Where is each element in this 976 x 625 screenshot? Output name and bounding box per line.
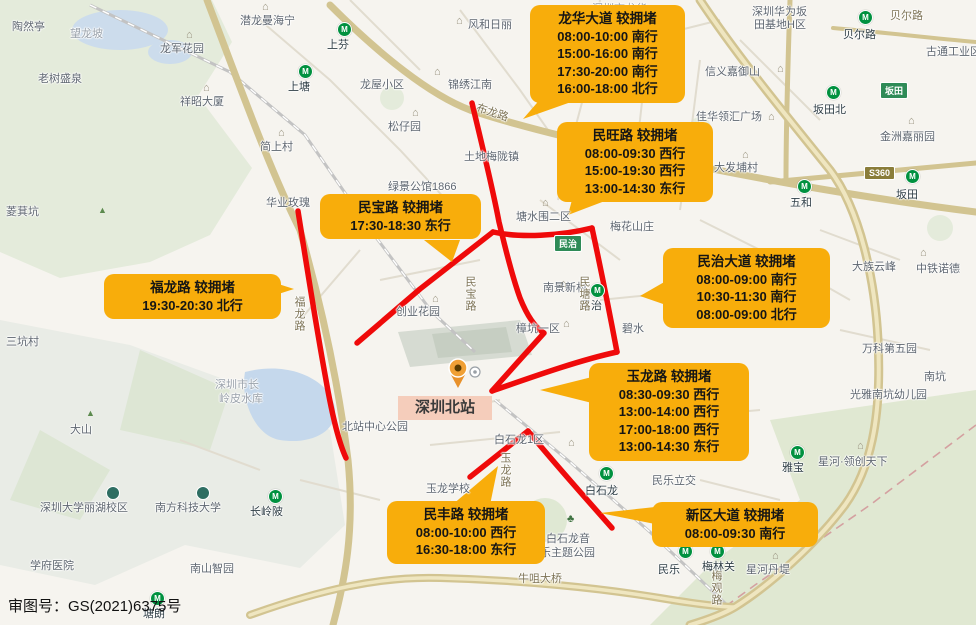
- road-shield: S360: [864, 166, 895, 180]
- callout-title: 民宝路 较拥堵: [326, 199, 475, 217]
- map-label: 菱萁坑: [6, 203, 39, 219]
- school-icon: [106, 486, 120, 500]
- mountain-icon: ▲: [98, 206, 107, 215]
- map-label: 岭皮水库: [219, 390, 263, 406]
- callout-title: 民丰路 较拥堵: [393, 506, 539, 524]
- map-label: 陶然亭: [12, 18, 45, 34]
- building-icon: ⌂: [432, 294, 439, 304]
- map-label: 老树盛泉: [38, 70, 82, 86]
- building-icon: ⌂: [568, 438, 575, 448]
- longhua-avenue-callout: 龙华大道 较拥堵08:00-10:00 南行15:00-16:00 南行17:3…: [530, 5, 685, 103]
- callout-time-line: 08:00-10:00 西行: [393, 524, 539, 542]
- map-label: 绿景公馆1866: [388, 178, 456, 194]
- map-label: 五和: [790, 194, 812, 210]
- metro-station-icon: M: [797, 179, 812, 194]
- map-label: 中铁诺德: [916, 260, 960, 276]
- map-label: 上芬: [327, 36, 349, 52]
- map-label: 深圳大学丽湖校区: [40, 499, 128, 515]
- map-label: 贝尔路: [843, 26, 876, 42]
- map-label: 雅宝: [782, 459, 804, 475]
- map-label: 樟坑一区: [516, 320, 560, 336]
- map-label: 简上村: [260, 138, 293, 154]
- map-canvas[interactable]: 陶然亭望龙坡老树盛泉龙军花园祥昭大厦潜龙曼海宁上塘简上村华业玫瑰菱萁坑三坑村大头…: [0, 0, 976, 625]
- map-label: 贝尔路: [890, 7, 923, 23]
- yulong-road-callout: 玉龙路 较拥堵08:30-09:30 西行13:00-14:00 西行17:00…: [589, 363, 749, 461]
- tail-yulong-road: [540, 377, 592, 403]
- building-icon: ⌂: [262, 2, 269, 12]
- building-icon: ⌂: [412, 108, 419, 118]
- metro-station-icon: M: [590, 283, 605, 298]
- map-label: 大山: [70, 421, 92, 437]
- park-northeast-2: [927, 215, 953, 241]
- map-label: 玉龙学校: [426, 480, 470, 496]
- building-icon: ⌂: [772, 551, 779, 561]
- map-label: 白石龙1区: [494, 431, 544, 447]
- building-icon: ⌂: [203, 83, 210, 93]
- callout-time-line: 08:00-09:30 南行: [658, 525, 812, 543]
- school-icon: [196, 486, 210, 500]
- minzhi-avenue-callout: 民治大道 较拥堵08:00-09:00 南行10:30-11:30 南行08:0…: [663, 248, 830, 328]
- map-label: 乐主题公园: [540, 544, 595, 560]
- callout-title: 民治大道 较拥堵: [669, 253, 824, 271]
- map-label: 坂田北: [813, 101, 846, 117]
- callout-time-line: 19:30-20:30 北行: [110, 297, 275, 315]
- callout-title: 新区大道 较拥堵: [658, 507, 812, 525]
- callout-time-line: 17:30-18:30 东行: [326, 217, 475, 235]
- building-icon: ⌂: [563, 319, 570, 329]
- map-label: 白石龙: [585, 482, 618, 498]
- building-icon: ⌂: [186, 30, 193, 40]
- metro-station-icon: M: [826, 85, 841, 100]
- building-icon: ⌂: [777, 64, 784, 74]
- callout-title: 民旺路 较拥堵: [563, 127, 707, 145]
- metro-station-icon: M: [268, 489, 283, 504]
- map-label: 民塘路: [576, 276, 592, 312]
- map-label: 学府医院: [30, 557, 74, 573]
- callout-time-line: 15:00-19:30 西行: [563, 162, 707, 180]
- map-label: 北站中心公园: [342, 418, 408, 434]
- mountain-icon: ▲: [86, 409, 95, 418]
- callout-time-line: 08:00-09:00 南行: [669, 271, 824, 289]
- map-label: 南坑: [924, 368, 946, 384]
- callout-time-line: 08:30-09:30 西行: [595, 386, 743, 404]
- map-label: 长岭陂: [250, 503, 283, 519]
- metro-station-icon: M: [790, 445, 805, 460]
- map-label: 民乐立交: [652, 472, 696, 488]
- callout-time-line: 10:30-11:30 南行: [669, 288, 824, 306]
- map-label: 碧水: [622, 320, 644, 336]
- building-icon: ⌂: [742, 150, 749, 160]
- map-label: 龙军花园: [160, 40, 204, 56]
- minfeng-road-callout: 民丰路 较拥堵08:00-10:00 西行16:30-18:00 东行: [387, 501, 545, 564]
- map-label: 南山智园: [190, 560, 234, 576]
- map-label: 牛咀大桥: [518, 570, 562, 586]
- map-label: 锦绣江南: [448, 76, 492, 92]
- minwang-road-callout: 民旺路 较拥堵08:00-09:30 西行15:00-19:30 西行13:00…: [557, 122, 713, 202]
- callout-time-line: 15:00-16:00 南行: [536, 45, 679, 63]
- callout-time-line: 08:00-10:00 南行: [536, 28, 679, 46]
- map-label: 上塘: [288, 78, 310, 94]
- metro-station-icon: M: [298, 64, 313, 79]
- building-icon: ⌂: [768, 112, 775, 122]
- map-label: 坂田: [896, 186, 918, 202]
- map-label: 华业玫瑰: [266, 194, 310, 210]
- map-label: 光雅南坑幼儿园: [850, 386, 927, 402]
- map-label: 祥昭大厦: [180, 93, 224, 109]
- callout-time-line: 17:00-18:00 西行: [595, 421, 743, 439]
- road-south-bridge: [250, 578, 735, 615]
- map-label: 南方科技大学: [155, 499, 221, 515]
- map-label: 古通工业区: [926, 43, 976, 59]
- fulong-road-callout: 福龙路 较拥堵19:30-20:30 北行: [104, 274, 281, 319]
- map-label: 星河·领创天下: [818, 453, 888, 469]
- station-highlight-card: 深圳北站: [398, 396, 492, 420]
- metro-station-icon: M: [905, 169, 920, 184]
- building-icon: ⌂: [560, 279, 567, 289]
- building-icon: ⌂: [920, 248, 927, 258]
- building-icon: ⌂: [857, 441, 864, 451]
- tree-icon: ♣: [567, 514, 574, 524]
- map-label: 龙屋小区: [360, 76, 404, 92]
- road-shield: 坂田: [880, 82, 908, 99]
- callout-title: 龙华大道 较拥堵: [536, 10, 679, 28]
- map-label: 三坑村: [6, 333, 39, 349]
- metro-station-icon: M: [858, 10, 873, 25]
- map-label: 大族云峰: [852, 258, 896, 274]
- callout-time-line: 08:00-09:30 西行: [563, 145, 707, 163]
- map-label: 梅花山庄: [610, 218, 654, 234]
- map-label: 塘水围二区: [516, 208, 571, 224]
- minbao-road-callout: 民宝路 较拥堵17:30-18:30 东行: [320, 194, 481, 239]
- map-label: 松仔园: [388, 118, 421, 134]
- map-label: 望龙坡: [70, 25, 103, 41]
- map-label: 风和日丽: [468, 16, 512, 32]
- metro-station-icon: M: [337, 22, 352, 37]
- callout-title: 福龙路 较拥堵: [110, 279, 275, 297]
- map-label: 金洲嘉丽园: [880, 128, 935, 144]
- callout-time-line: 16:30-18:00 东行: [393, 541, 539, 559]
- map-label: 星河丹堤: [746, 561, 790, 577]
- map-label: 田基地H区: [754, 16, 806, 32]
- building-icon: ⌂: [542, 198, 549, 208]
- callout-time-line: 16:00-18:00 北行: [536, 80, 679, 98]
- callout-title: 玉龙路 较拥堵: [595, 368, 743, 386]
- map-label: 潜龙曼海宁: [240, 12, 295, 28]
- map-label: 玉龙路: [497, 452, 513, 488]
- map-label: 创业花园: [396, 303, 440, 319]
- callout-time-line: 17:30-20:00 南行: [536, 63, 679, 81]
- map-label: 梅观路: [708, 570, 724, 606]
- map-label: 福龙路: [291, 296, 307, 332]
- building-icon: ⌂: [278, 128, 285, 138]
- map-label: 土地梅陇镇: [464, 148, 519, 164]
- callout-time-line: 13:00-14:30 东行: [595, 438, 743, 456]
- callout-time-line: 13:00-14:30 东行: [563, 180, 707, 198]
- station-pin[interactable]: [449, 359, 480, 388]
- building-icon: ⌂: [456, 16, 463, 26]
- callout-time-line: 08:00-09:00 北行: [669, 306, 824, 324]
- building-icon: ⌂: [908, 116, 915, 126]
- map-attribution: 审图号：GS(2021)6375号: [8, 595, 181, 616]
- metro-station-icon: M: [599, 466, 614, 481]
- map-label: 民宝路: [462, 276, 478, 312]
- map-label: 大发埔村: [714, 159, 758, 175]
- callout-time-line: 13:00-14:00 西行: [595, 403, 743, 421]
- road-shield: 民治: [554, 235, 582, 252]
- xinqu-avenue-callout: 新区大道 较拥堵08:00-09:30 南行: [652, 502, 818, 547]
- map-label: 万科第五园: [862, 340, 917, 356]
- map-label: 信义嘉御山: [705, 63, 760, 79]
- building-icon: ⌂: [434, 67, 441, 77]
- map-label: 民乐: [658, 561, 680, 577]
